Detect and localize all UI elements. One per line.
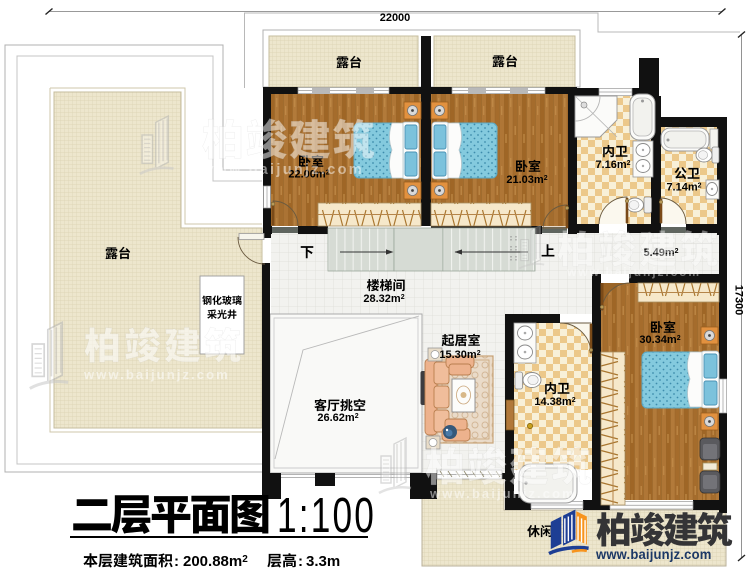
- svg-text:28.32m2: 28.32m2: [363, 293, 404, 305]
- svg-text:17300: 17300: [733, 285, 745, 316]
- svg-text::: :: [174, 553, 179, 570]
- svg-text:14.38m2: 14.38m2: [534, 396, 575, 408]
- svg-text::: :: [298, 553, 303, 570]
- svg-text:7.16m2: 7.16m2: [595, 159, 630, 171]
- svg-text:26.62m2: 26.62m2: [317, 412, 358, 424]
- svg-text:22000: 22000: [380, 12, 411, 24]
- svg-text:21.03m2: 21.03m2: [506, 174, 547, 186]
- svg-text:www.baijunjz.com: www.baijunjz.com: [201, 162, 364, 178]
- svg-text:www.baijunjz.com: www.baijunjz.com: [595, 547, 712, 563]
- svg-text:www.baijunjz.com: www.baijunjz.com: [429, 486, 576, 501]
- svg-text:30.34m2: 30.34m2: [639, 334, 680, 346]
- svg-text:www.baijunjz.com: www.baijunjz.com: [83, 367, 230, 382]
- svg-text:1:100: 1:100: [277, 488, 376, 543]
- svg-text:15.30m2: 15.30m2: [439, 349, 480, 361]
- svg-text:7.14m2: 7.14m2: [666, 182, 701, 194]
- svg-text:200.88m2: 200.88m2: [183, 553, 248, 570]
- svg-text:3.3m: 3.3m: [306, 553, 340, 570]
- svg-text:www.baijunjz.com: www.baijunjz.com: [566, 265, 701, 279]
